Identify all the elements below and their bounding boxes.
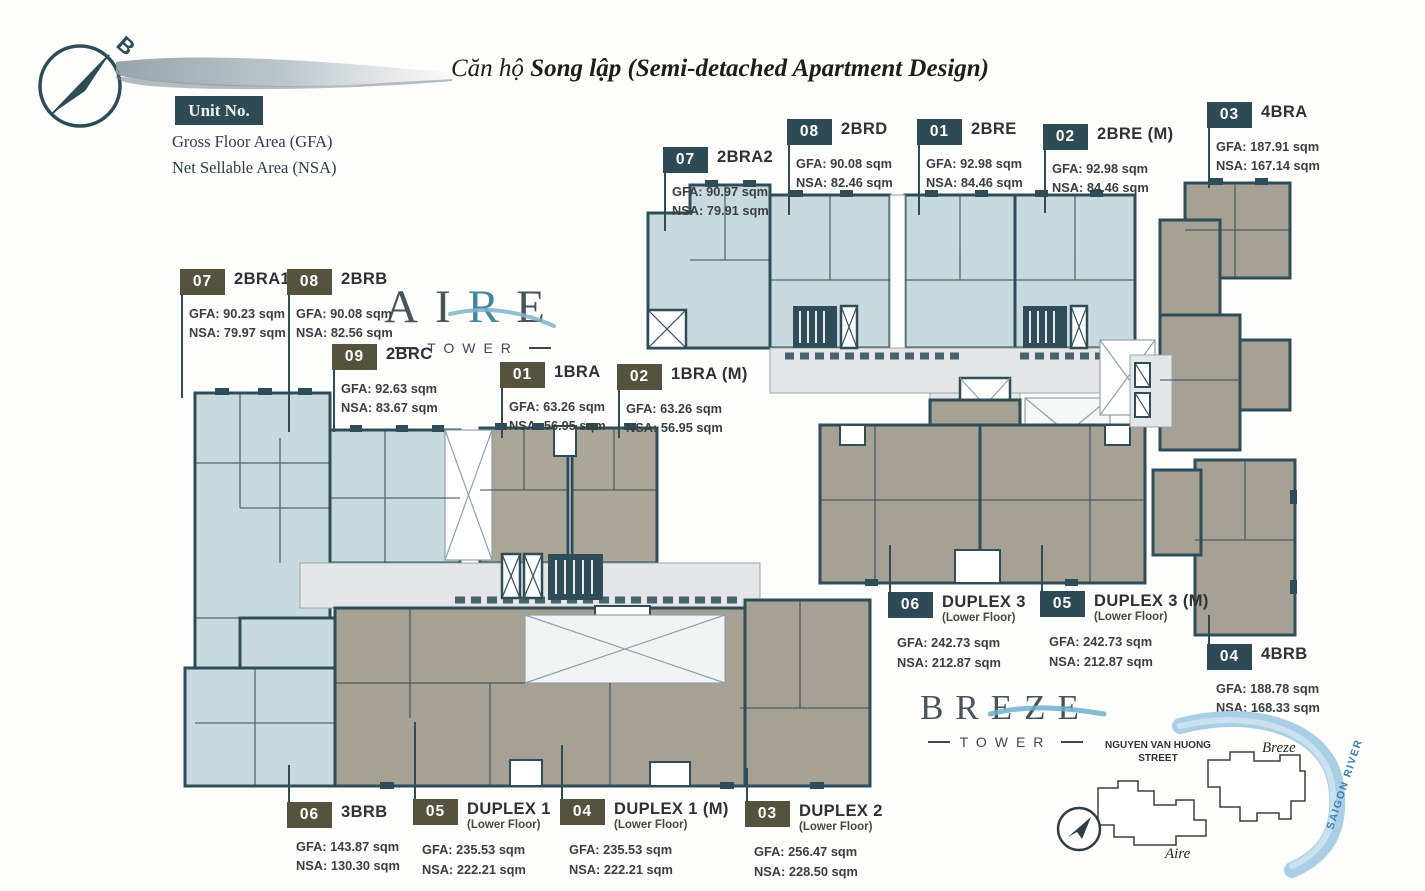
page-title: Căn hộ Song lập (Semi-detached Apartment… — [420, 55, 1020, 83]
unit-areas: GFA: 90.97 sqmNSA: 79.91 sqm — [672, 182, 773, 220]
unit-callout-breze-2bre: 01 2BRE GFA: 92.98 sqmNSA: 84.46 sqm — [917, 119, 1023, 192]
aire-elevator-core — [502, 554, 603, 600]
unit-type-label: DUPLEX 2 — [799, 803, 883, 820]
unit-shape-3brb — [185, 668, 335, 786]
unit-shape-2brc — [330, 430, 460, 563]
unit-areas: GFA: 235.53 sqmNSA: 222.21 sqm — [569, 840, 729, 878]
breze-elevator-core-left — [793, 306, 857, 348]
unit-type-label: 4BRA — [1261, 104, 1308, 121]
unit-areas: GFA: 92.98 sqmNSA: 84.46 sqm — [926, 154, 1023, 192]
leader-line — [746, 768, 748, 801]
unit-number-chip: 07 — [180, 269, 225, 295]
unit-areas: GFA: 90.08 sqmNSA: 82.46 sqm — [796, 154, 893, 192]
unit-callout-aire-1bra: 01 1BRA GFA: 63.26 sqmNSA: 56.95 sqm — [500, 362, 606, 435]
unit-callout-breze-4bra: 03 4BRA GFA: 187.91 sqmNSA: 167.14 sqm — [1207, 102, 1320, 175]
leader-line — [889, 545, 891, 592]
unit-number-chip: 02 — [1043, 124, 1088, 150]
unit-type-label: 2BRE — [971, 121, 1017, 138]
unit-number-chip: 06 — [888, 592, 933, 618]
unit-callout-aire-3brb: 06 3BRB GFA: 143.87 sqmNSA: 130.30 sqm — [287, 802, 400, 875]
unit-sub-label: (Lower Floor) — [942, 612, 1026, 624]
title-main: Song lập (Semi-detached Apartment Design… — [530, 55, 989, 82]
svg-text:STREET: STREET — [1138, 753, 1177, 764]
breze-logo-letters: BRE — [920, 688, 1024, 727]
unit-sub-label: (Lower Floor) — [467, 819, 551, 831]
unit-areas: GFA: 92.63 sqmNSA: 83.67 sqm — [341, 379, 438, 417]
aire-logo-subtitle: TOWER — [427, 340, 519, 356]
aire-logo-letters: AI — [384, 281, 468, 333]
unit-areas: GFA: 63.26 sqmNSA: 56.95 sqm — [626, 399, 748, 437]
unit-number-chip: 06 — [287, 802, 332, 828]
unit-areas: GFA: 143.87 sqmNSA: 130.30 sqm — [296, 837, 400, 875]
legend-unit-no-chip: Unit No. — [175, 96, 263, 125]
unit-type-label: DUPLEX 3 — [942, 594, 1026, 611]
unit-type-label: 2BRA2 — [717, 149, 773, 166]
unit-sub-label: (Lower Floor) — [799, 821, 883, 833]
unit-number-chip: 04 — [560, 799, 605, 825]
unit-sub-label: (Lower Floor) — [614, 819, 729, 831]
unit-type-label: 3BRB — [341, 804, 388, 821]
unit-number-chip: 01 — [917, 119, 962, 145]
unit-areas: GFA: 90.23 sqmNSA: 79.97 sqm — [189, 304, 290, 342]
leader-line — [1041, 545, 1043, 591]
minimap-aire-footprint — [1098, 781, 1206, 845]
unit-type-label: 2BRC — [386, 346, 433, 363]
unit-number-chip: 02 — [617, 364, 662, 390]
unit-callout-aire-2brb: 08 2BRB GFA: 90.08 sqmNSA: 82.56 sqm — [287, 269, 393, 342]
unit-callout-breze-2brd: 08 2BRD GFA: 90.08 sqmNSA: 82.46 sqm — [787, 119, 893, 192]
unit-number-chip: 01 — [500, 362, 545, 388]
leader-line — [288, 765, 290, 802]
unit-callout-aire-2bra1: 07 2BRA1 GFA: 90.23 sqmNSA: 79.97 sqm — [180, 269, 290, 342]
unit-number-chip: 07 — [663, 147, 708, 173]
breze-elevator-core-right — [1023, 306, 1087, 348]
unit-callout-aire-2brc: 09 2BRC GFA: 92.63 sqmNSA: 83.67 sqm — [332, 344, 438, 417]
breze-logo-subtitle: TOWER — [960, 734, 1052, 750]
unit-number-chip: 08 — [287, 269, 332, 295]
unit-type-label: DUPLEX 1 (M) — [614, 801, 729, 818]
unit-callout-aire-duplex2: 03 DUPLEX 2 (Lower Floor) GFA: 256.47 sq… — [745, 801, 883, 881]
unit-areas: GFA: 90.08 sqmNSA: 82.56 sqm — [296, 304, 393, 342]
unit-type-label: 1BRA (M) — [671, 366, 748, 383]
logo-dash — [928, 741, 950, 743]
unit-type-label: 2BRB — [341, 271, 388, 288]
aire-void-xbox — [445, 430, 492, 560]
title-prefix: Căn hộ — [451, 55, 524, 82]
minimap-breze-label: Breze — [1262, 740, 1296, 756]
unit-areas: GFA: 242.73 sqmNSA: 212.87 sqm — [897, 633, 1026, 671]
unit-sub-label: (Lower Floor) — [1094, 611, 1209, 623]
legend-nsa: Net Sellable Area (NSA) — [172, 158, 337, 178]
unit-number-chip: 04 — [1207, 644, 1252, 670]
legend-gfa: Gross Floor Area (GFA) — [172, 132, 333, 152]
unit-number-chip: 05 — [1040, 591, 1085, 617]
unit-type-label: 2BRD — [841, 121, 888, 138]
leader-line — [414, 722, 416, 799]
unit-shape-duplex3-m — [980, 425, 1145, 583]
unit-type-label: 2BRA1 — [234, 271, 290, 288]
unit-number-chip: 05 — [413, 799, 458, 825]
unit-callout-breze-2bra2: 07 2BRA2 GFA: 90.97 sqmNSA: 79.91 sqm — [663, 147, 773, 220]
unit-type-label: 2BRE (M) — [1097, 126, 1174, 143]
unit-callout-aire-1bra-m: 02 1BRA (M) GFA: 63.26 sqmNSA: 56.95 sqm — [617, 364, 748, 437]
breze-right-lobby — [1130, 355, 1172, 427]
breze-void-xbox-left — [648, 310, 686, 348]
unit-number-chip: 09 — [332, 344, 377, 370]
unit-areas: GFA: 256.47 sqmNSA: 228.50 sqm — [754, 842, 883, 880]
minimap-street-label: NGUYEN VAN HUONG — [1105, 740, 1211, 751]
unit-areas: GFA: 187.91 sqmNSA: 167.14 sqm — [1216, 137, 1320, 175]
unit-areas: GFA: 242.73 sqmNSA: 212.87 sqm — [1049, 632, 1209, 670]
navigation-arrow-icon — [1053, 803, 1105, 855]
minimap-buildings — [1098, 752, 1305, 845]
unit-areas: GFA: 92.98 sqmNSA: 84.46 sqm — [1052, 159, 1174, 197]
unit-type-label: 1BRA — [554, 364, 601, 381]
aire-logo-accent-letter: R — [468, 281, 516, 333]
location-minimap: NGUYEN VAN HUONG STREET Breze Aire SAIGO… — [1040, 700, 1425, 890]
minimap-breze-footprint — [1208, 752, 1305, 821]
minimap-aire-label: Aire — [1164, 846, 1191, 862]
unit-callout-aire-duplex1: 05 DUPLEX 1 (Lower Floor) GFA: 235.53 sq… — [413, 799, 551, 879]
brush-stroke — [110, 48, 455, 103]
unit-areas: GFA: 235.53 sqmNSA: 222.21 sqm — [422, 840, 551, 878]
unit-callout-breze-duplex3: 06 DUPLEX 3 (Lower Floor) GFA: 242.73 sq… — [888, 592, 1026, 672]
unit-type-label: 4BRB — [1261, 646, 1308, 663]
unit-number-chip: 08 — [787, 119, 832, 145]
unit-number-chip: 03 — [1207, 102, 1252, 128]
unit-type-label: DUPLEX 1 — [467, 801, 551, 818]
unit-type-label: DUPLEX 3 (M) — [1094, 593, 1209, 610]
unit-callout-breze-2bre-m: 02 2BRE (M) GFA: 92.98 sqmNSA: 84.46 sqm — [1043, 124, 1174, 197]
logo-dash — [529, 347, 551, 349]
unit-shape-4bra — [1160, 183, 1290, 450]
unit-callout-breze-duplex3-m: 05 DUPLEX 3 (M) (Lower Floor) GFA: 242.7… — [1040, 591, 1209, 671]
leader-line — [561, 745, 563, 799]
unit-number-chip: 03 — [745, 801, 790, 827]
unit-callout-aire-duplex1-m: 04 DUPLEX 1 (M) (Lower Floor) GFA: 235.5… — [560, 799, 729, 879]
unit-areas: GFA: 63.26 sqmNSA: 56.95 sqm — [509, 397, 606, 435]
